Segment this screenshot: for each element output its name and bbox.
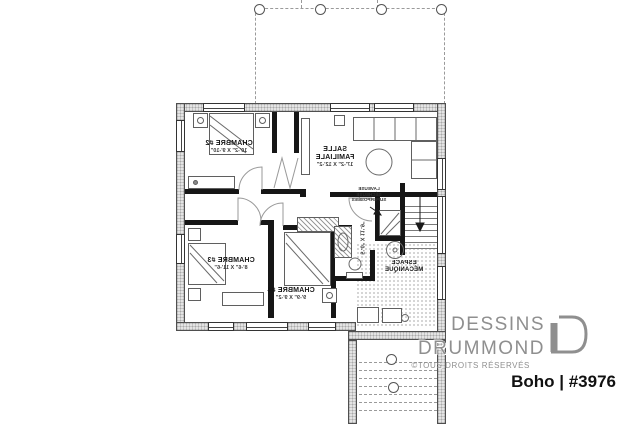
bed-fold-line	[286, 234, 329, 284]
closet-bifold-doors	[274, 158, 298, 188]
laundry-note-line: SUPERPOSÉES	[346, 197, 392, 203]
room-name: FAMILIALE	[297, 154, 373, 162]
door-arc	[260, 203, 283, 226]
room-dims: 5'-0" X 11'-9"	[359, 221, 365, 254]
bathroom-dims-rotated: 5'-0" X 11'-9"	[334, 210, 390, 266]
drummond-d-logo-icon	[546, 312, 588, 358]
brand-name-line1: DESSINS	[451, 314, 545, 336]
brand-block: DESSINS DRUMMOND ©TOUS DROITS RÉSERVÉS B…	[418, 310, 628, 420]
room-name: CHAMBRE #3	[187, 257, 275, 265]
room-dims: 8'-6" X 11'-6"	[187, 265, 275, 271]
room-label-chambre4: CHAMBRE #4 9'-9" X 9'-2"	[255, 287, 327, 301]
laundry-note: LAVEUSE SÉCHEUSE SUPERPOSÉES	[346, 186, 392, 203]
room-name: MÉCANIQUE	[368, 267, 440, 274]
floor-plan-sheet: CHAMBRE #2 10'-2" X 9'-10" SALLE FAMILIA…	[0, 0, 628, 424]
water-heater-cap	[393, 248, 397, 252]
door-arc	[238, 198, 261, 221]
stair-direction-arrow-head	[416, 223, 424, 231]
plan-name-number: Boho | #3976	[511, 372, 616, 392]
room-dims: 10'-2" X 9'-10"	[183, 148, 275, 154]
door-arc	[239, 167, 262, 190]
brand-copyright: ©TOUS DROITS RÉSERVÉS	[411, 361, 530, 370]
room-dims: 17'-2" X 12'-2"	[297, 162, 373, 168]
brand-name-line2: DRUMMOND	[418, 338, 545, 360]
room-name: CHAMBRE #2	[183, 140, 275, 148]
room-label-chambre2: CHAMBRE #2 10'-2" X 9'-10"	[183, 140, 275, 154]
room-name: CHAMBRE #4	[255, 287, 327, 295]
room-name: SALLE	[297, 146, 373, 154]
room-label-chambre3: CHAMBRE #3 8'-6" X 11'-6"	[187, 257, 275, 271]
room-dims: 9'-9" X 9'-2"	[255, 295, 327, 301]
sofa-cushion-lines	[374, 118, 437, 160]
room-label-salle-familiale: SALLE FAMILIALE 17'-2" X 12'-2"	[297, 146, 373, 168]
mechanical-pipe	[402, 315, 409, 322]
